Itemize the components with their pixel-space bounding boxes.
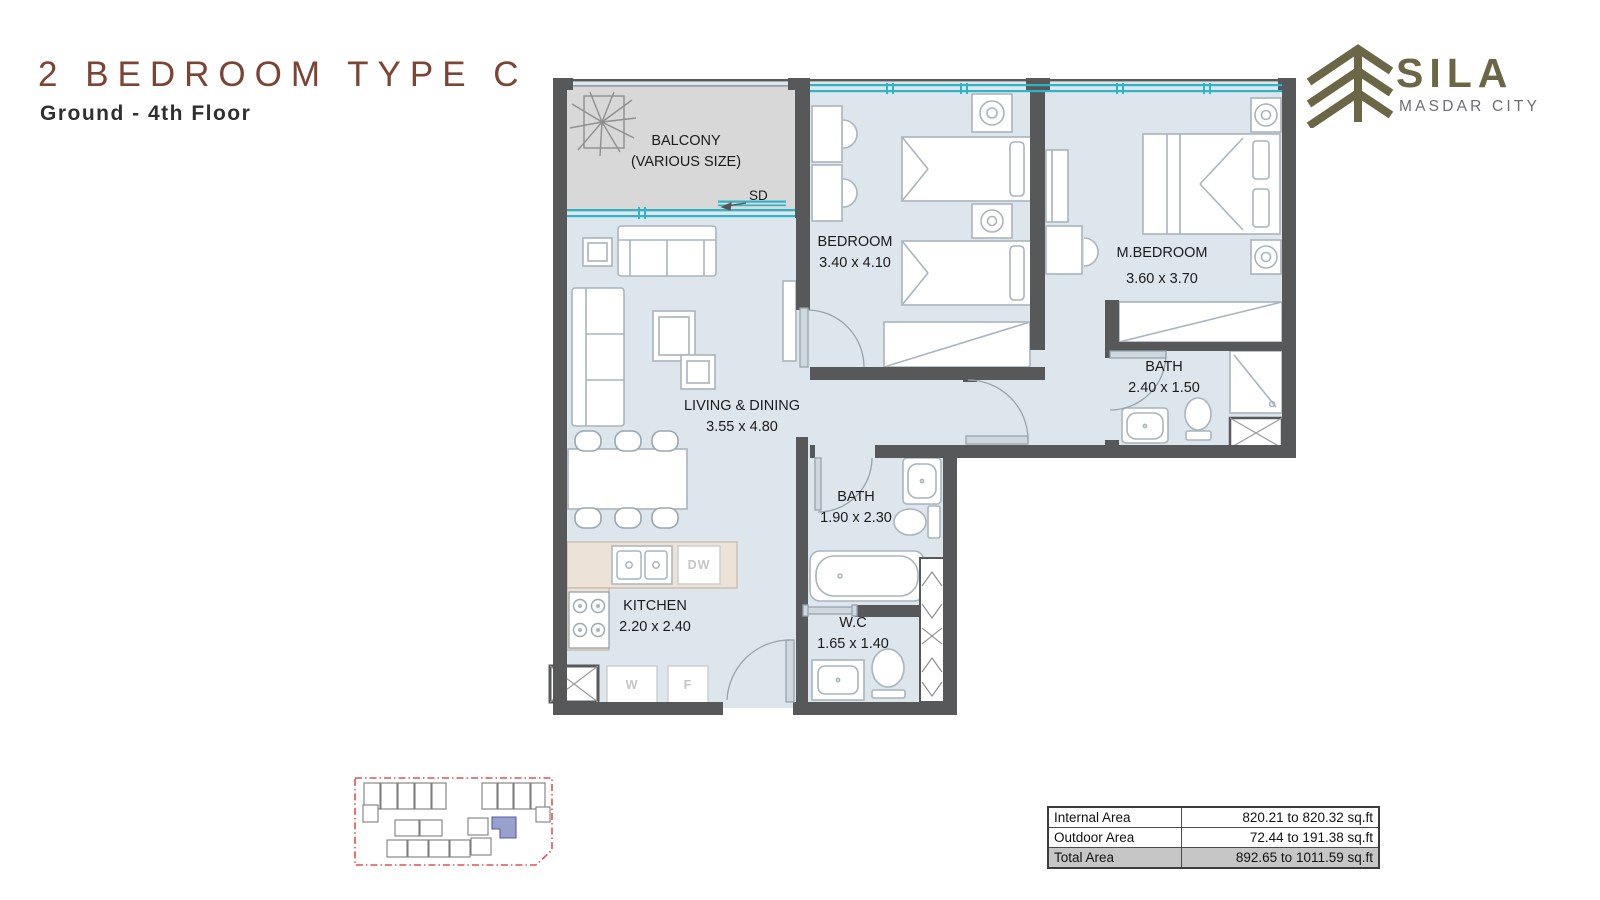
tv-panel (1046, 150, 1068, 222)
single-bed-2 (902, 241, 1032, 305)
nightstand-4 (1251, 240, 1281, 274)
area-row-label: Outdoor Area (1048, 828, 1182, 848)
area-row-value: 72.44 to 191.38 sq.ft (1182, 828, 1380, 848)
tv-unit (783, 281, 796, 361)
sofa-2 (572, 288, 624, 426)
highlighted-unit (492, 817, 516, 838)
room-label-bath: BATH1.90 x 2.30 (820, 487, 892, 529)
floorplan-page: 2 BEDROOM TYPE C Ground - 4th Floor SILA… (0, 0, 1600, 900)
utility-shaft (920, 558, 944, 702)
site-units (363, 783, 550, 857)
table-row: Internal Area 820.21 to 820.32 sq.ft (1048, 807, 1379, 828)
side-table (583, 238, 612, 266)
room-label-balcony: BALCONY(VARIOUS SIZE) (631, 131, 741, 173)
area-row-label: Total Area (1048, 848, 1182, 869)
sink-2 (903, 458, 941, 504)
toilet (1185, 398, 1211, 440)
room-label-living-dining: LIVING & DINING3.55 x 4.80 (684, 396, 800, 438)
table-row-total: Total Area 892.65 to 1011.59 sq.ft (1048, 848, 1379, 869)
bathtub (810, 551, 924, 601)
room-label-wc: W.C1.65 x 1.40 (817, 613, 889, 655)
kitchen-sink (612, 546, 672, 584)
fridge-label: F (684, 678, 693, 692)
stove (569, 592, 609, 648)
double-bed (1143, 134, 1280, 234)
room-label-kitchen: KITCHEN2.20 x 2.40 (619, 596, 691, 638)
washer-label: W (626, 678, 639, 692)
area-table: Internal Area 820.21 to 820.32 sq.ft Out… (1047, 806, 1380, 869)
sink (1122, 408, 1168, 443)
single-bed (902, 137, 1032, 201)
area-row-value: 820.21 to 820.32 sq.ft (1182, 807, 1380, 828)
wardrobe (884, 322, 1030, 367)
nightstand-2 (972, 204, 1012, 238)
sofa (618, 226, 716, 276)
nightstand-3 (1251, 98, 1281, 132)
site-key-plan (340, 745, 570, 875)
shower (1230, 351, 1282, 413)
table-row: Outdoor Area 72.44 to 191.38 sq.ft (1048, 828, 1379, 848)
sliding-door-label: SD (749, 188, 768, 203)
room-label-master-bedroom: M.BEDROOM3.60 x 3.70 (1116, 243, 1207, 290)
toilet-3 (872, 649, 905, 698)
wardrobe-2 (1119, 302, 1282, 342)
sink-3 (812, 660, 864, 700)
toilet-2 (894, 506, 940, 538)
floor-plan (0, 0, 1600, 900)
bath-shaft (1230, 418, 1282, 448)
room-label-master-bath: BATH2.40 x 1.50 (1128, 357, 1200, 399)
area-row-label: Internal Area (1048, 807, 1182, 828)
area-row-value: 892.65 to 1011.59 sq.ft (1182, 848, 1380, 869)
nightstand (972, 94, 1012, 132)
dining-table (568, 449, 687, 509)
dishwasher-label: DW (688, 558, 711, 572)
room-label-bedroom: BEDROOM3.40 x 4.10 (818, 232, 893, 274)
